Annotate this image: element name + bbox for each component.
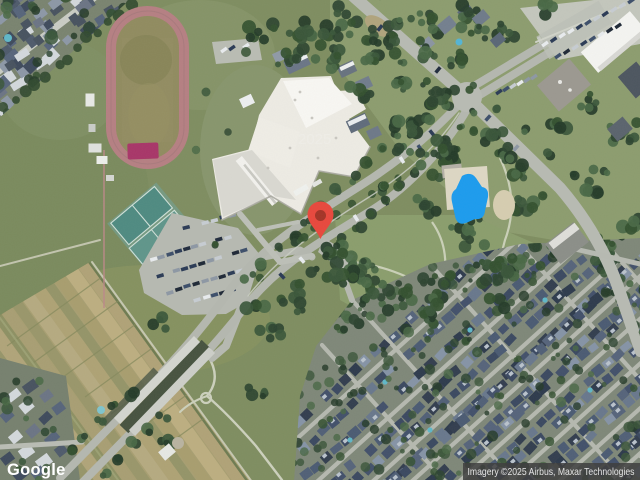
svg-text:Imagery ©2025 Airbus, Maxar Te: Imagery ©2025 Airbus, Maxar Technologies	[468, 467, 635, 478]
svg-text:Google: Google	[7, 461, 66, 479]
